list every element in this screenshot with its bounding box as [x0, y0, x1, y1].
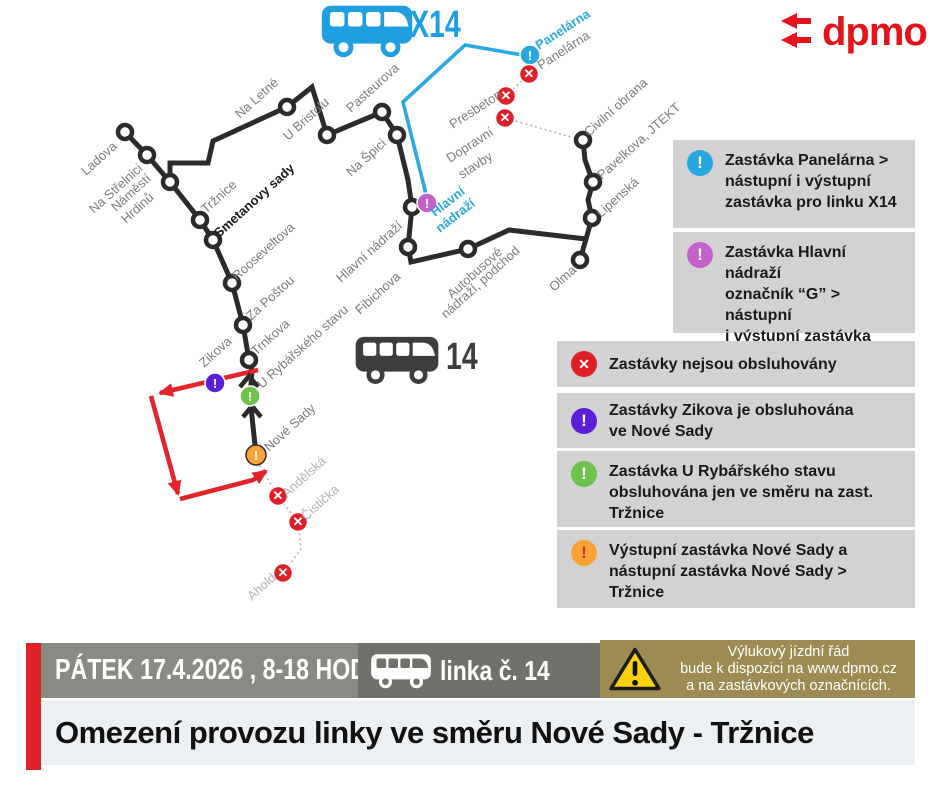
logo-arrow-right — [781, 32, 811, 48]
line-banner: linka č. 14 — [358, 643, 600, 698]
stop-circle — [375, 105, 389, 119]
dpmo-logo: dpmo — [776, 8, 936, 54]
accent-bar — [26, 643, 41, 770]
legend-line: Tržnice — [609, 503, 873, 524]
legend-line: ve Nové Sady — [609, 421, 854, 442]
badge-glyph: ! — [248, 389, 252, 404]
closed-stop-icon: ✕ — [571, 351, 597, 377]
stop-circle — [573, 253, 587, 267]
stop-label: Zikova — [196, 333, 235, 370]
stop-circle — [320, 128, 334, 142]
legend-line: Tržnice — [609, 582, 847, 603]
stop-label: Nové Sady — [261, 400, 319, 454]
legend-line: nástupní zastávka Nové Sady > — [609, 561, 847, 582]
vyluka-poster: { "header": { "logo_text": "dpmo", "x14_… — [0, 0, 940, 788]
stop-circle — [390, 128, 404, 142]
legend-panelarna-x14: ! Zastávka Panelárna > nástupní i výstup… — [673, 140, 915, 228]
info-icon-blue: ! — [687, 150, 713, 176]
line-number-text: linka č. 14 — [440, 655, 550, 687]
stop-circle — [236, 318, 250, 332]
badge-glyph: ✕ — [501, 88, 512, 103]
legend-line: označník “G” > nástupní — [725, 284, 905, 326]
info-icon-orange: ! — [571, 540, 597, 566]
stop-circle — [140, 148, 154, 162]
date-banner: PÁTEK 17.4.2026 , 8-18 HOD. — [41, 643, 358, 698]
badge-glyph: ✕ — [500, 110, 511, 125]
title-strip: Omezení provozu linky ve směru Nové Sady… — [41, 700, 915, 765]
legend-line: Zastávka Panelárna > — [725, 150, 897, 171]
notice-banner: Výlukový jízdní řád bude k dispozici na … — [600, 640, 915, 698]
detour-arrow-line — [151, 396, 178, 494]
legend-line: nástupní i výstupní — [725, 171, 897, 192]
legend-line: Zastávky Zikova je obsluhována — [609, 400, 854, 421]
legend-line: zastávka pro linku X14 — [725, 192, 897, 213]
badge-glyph: ! — [254, 448, 258, 463]
info-icon-magenta: ! — [687, 242, 713, 268]
stop-circle — [461, 242, 475, 256]
badge-glyph: ! — [213, 376, 217, 391]
detour-arrow-line — [180, 471, 266, 499]
legend-line: Zastávka Hlavní nádraží — [725, 242, 905, 284]
stop-label: Fibichova — [352, 268, 404, 317]
stop-label: Pasteurova — [343, 60, 402, 116]
stop-label: Za Poštou — [243, 272, 297, 323]
badge-glyph: ✕ — [278, 565, 289, 580]
legend-hlavni-nadrazi-x14: ! Zastávka Hlavní nádraží označník “G” >… — [673, 232, 915, 333]
stop-circle — [280, 100, 294, 114]
notice-line: a na zastávkových označnících. — [662, 678, 915, 695]
warning-icon — [608, 646, 662, 692]
legend-not-served: ✕ Zastávky nejsou obsluhovány — [557, 341, 915, 387]
route-label-x14: X14 — [410, 4, 461, 47]
info-icon-violet: ! — [571, 408, 597, 434]
stop-circle — [118, 125, 132, 139]
bus-icon-banner — [370, 651, 432, 691]
legend-line: Zastávka U Rybářského stavu — [609, 461, 873, 482]
route-label-14: 14 — [446, 336, 478, 379]
legend-nove-sady: ! Výstupní zastávka Nové Sady a nástupní… — [557, 530, 915, 608]
notice-line: bude k dispozici na www.dpmo.cz — [662, 661, 915, 678]
badge-glyph: ✕ — [524, 66, 535, 81]
stop-label: Ladova — [78, 138, 120, 178]
notice-line: Výlukový jízdní řád — [662, 644, 915, 661]
info-icon-green: ! — [571, 461, 597, 487]
legend-zikova: ! Zastávky Zikova je obsluhována ve Nové… — [557, 393, 915, 448]
page-title: Omezení provozu linky ve směru Nové Sady… — [55, 715, 814, 751]
legend-line: Výstupní zastávka Nové Sady a — [609, 540, 847, 561]
dotted-connector — [505, 74, 578, 139]
stop-label: Čistička — [298, 481, 342, 523]
date-text: PÁTEK 17.4.2026 , 8-18 HOD. — [55, 654, 374, 687]
logo-arrow-left — [781, 13, 811, 29]
legend-line: Zastávky nejsou obsluhovány — [609, 354, 837, 375]
stop-circle — [163, 175, 177, 189]
stop-label: Na Špici — [343, 136, 389, 180]
stop-label: Presbeton — [446, 87, 504, 132]
bus-icon-14 — [354, 333, 440, 387]
legend-u-rybarskeho-stavu: ! Zastávka U Rybářského stavu obsluhován… — [557, 451, 915, 527]
logo-text: dpmo — [822, 10, 927, 54]
badge-glyph: ! — [528, 48, 532, 63]
legend-line: obsluhována jen ve směru na zast. — [609, 482, 873, 503]
bus-icon-x14 — [320, 2, 414, 60]
stop-circle — [401, 240, 415, 254]
stop-circle — [193, 213, 207, 227]
stop-circle — [586, 175, 600, 189]
